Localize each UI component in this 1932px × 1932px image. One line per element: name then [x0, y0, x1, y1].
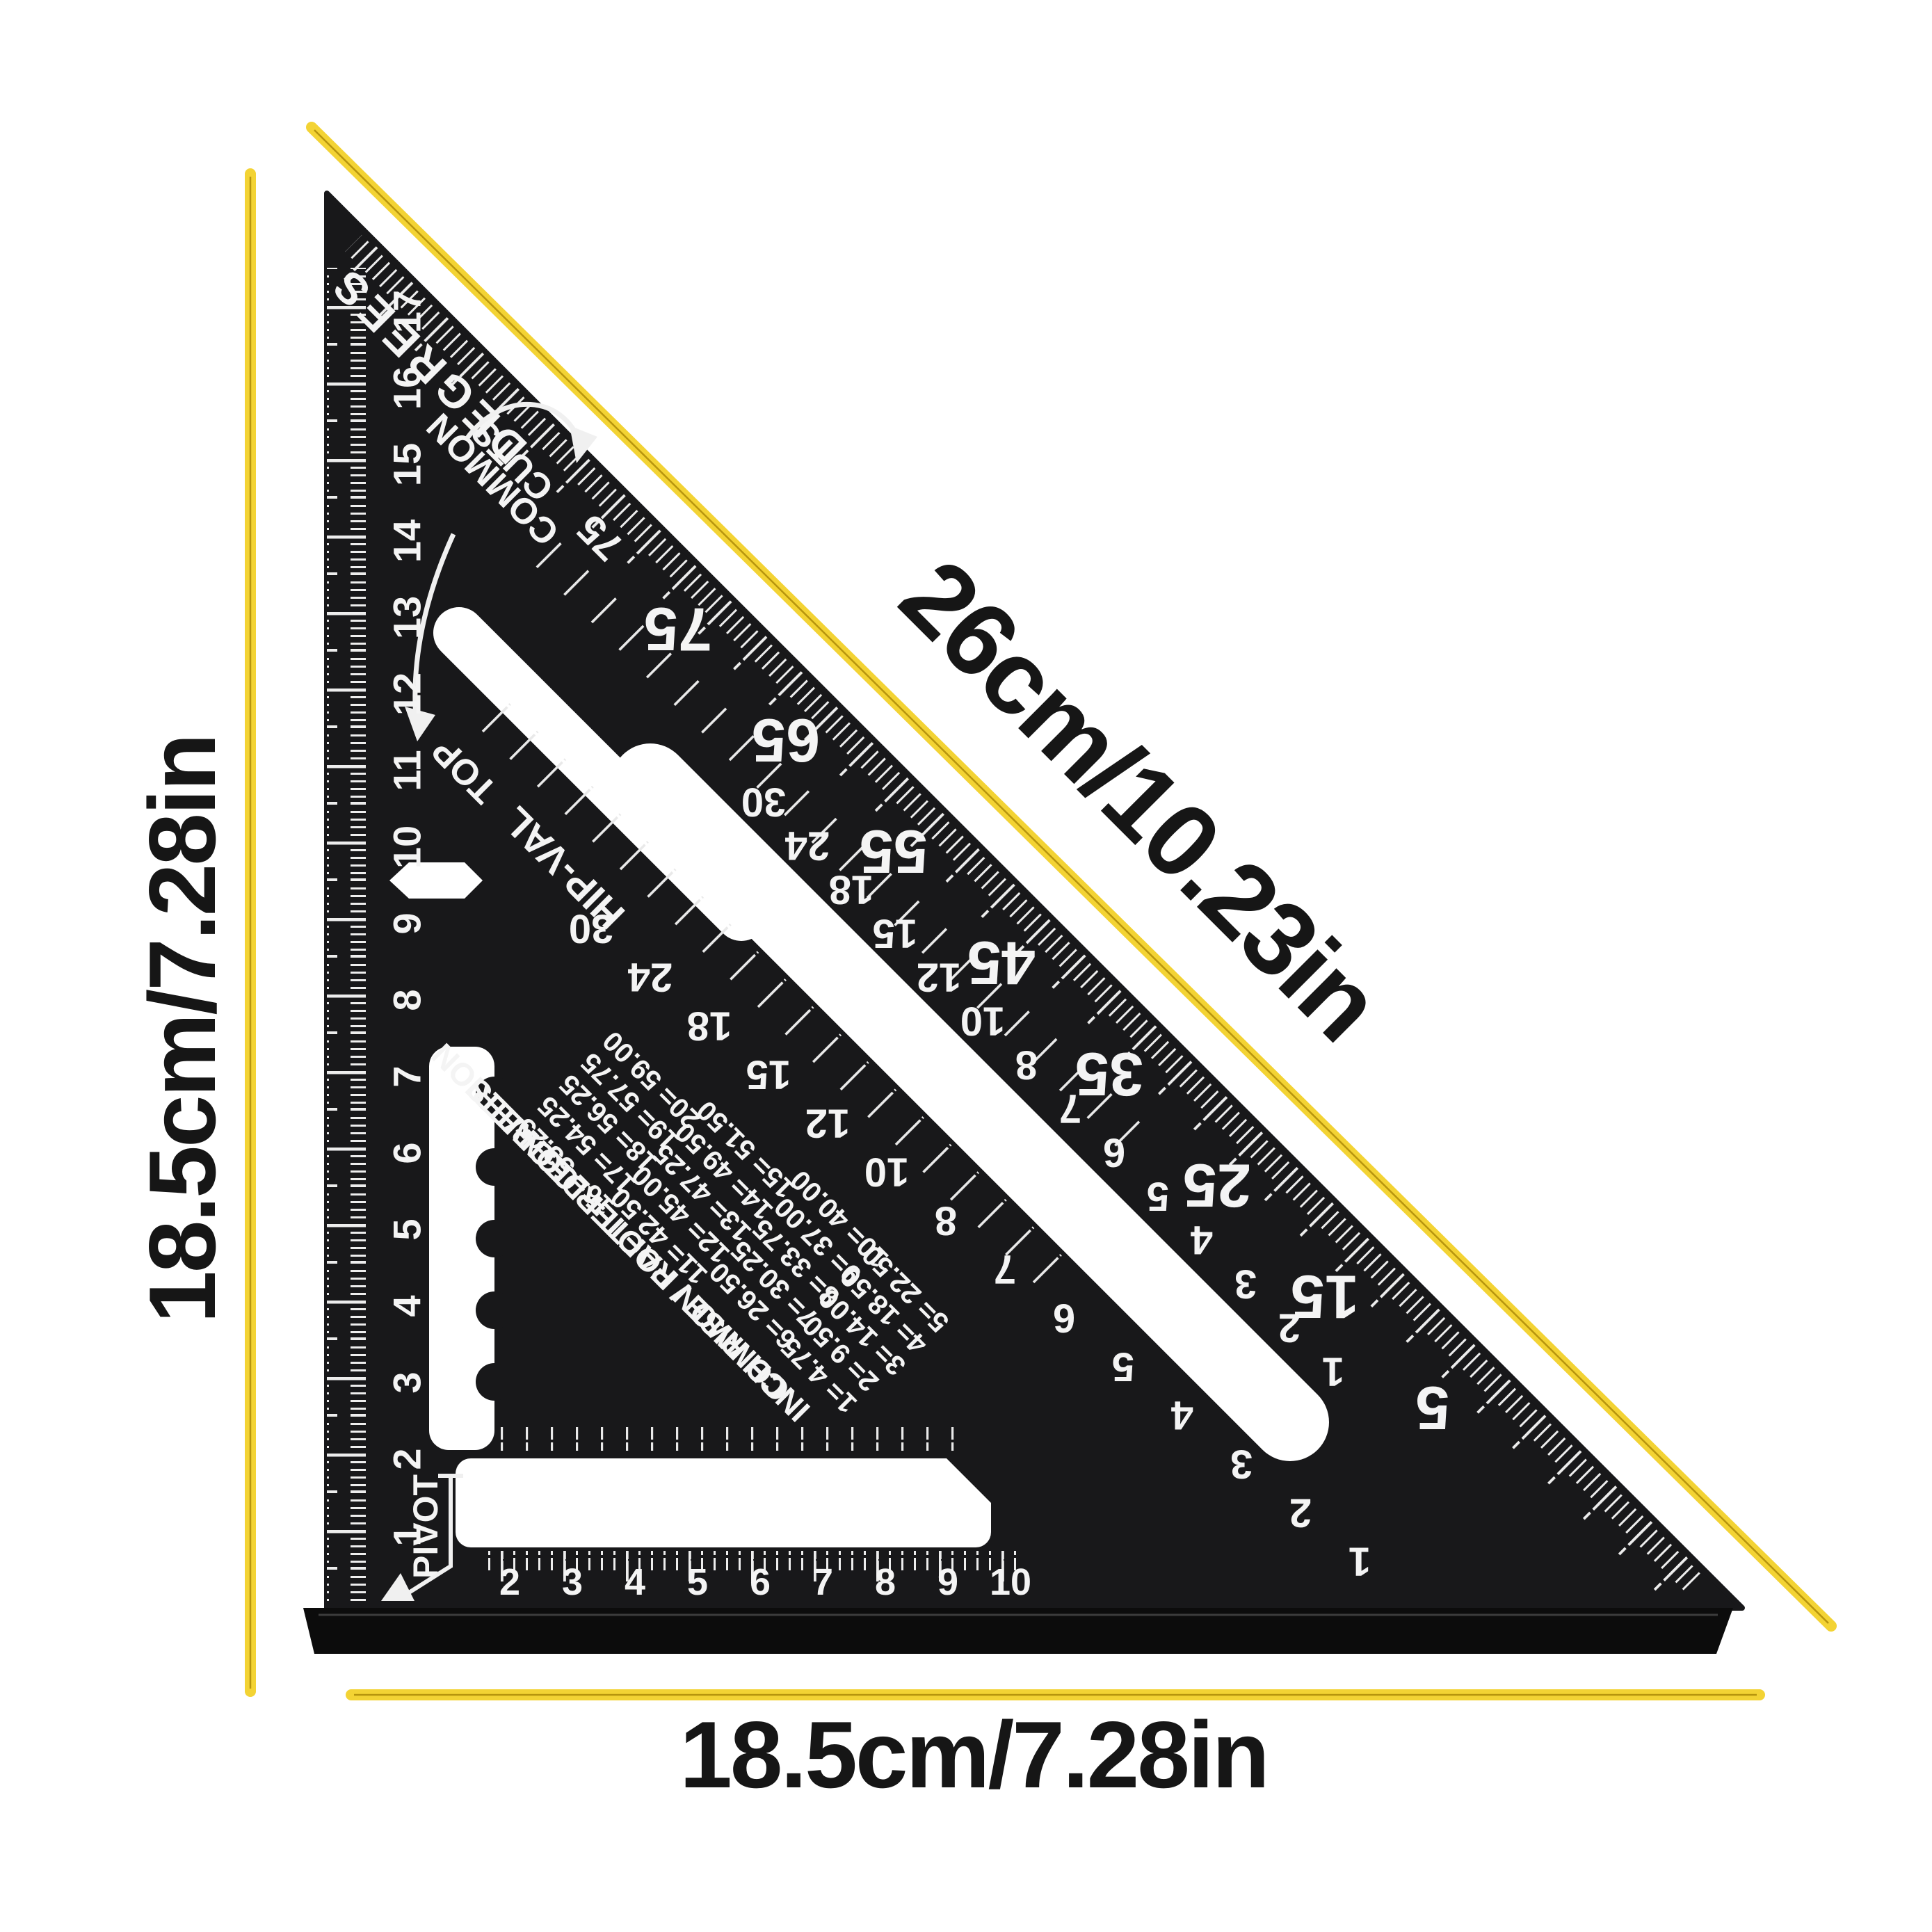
svg-text:10: 10 — [385, 826, 429, 869]
svg-text:6: 6 — [1053, 1296, 1075, 1341]
svg-text:10: 10 — [864, 1150, 910, 1195]
svg-text:4: 4 — [1171, 1393, 1193, 1438]
bottom-ruler-numbers: 2 3 4 5 6 7 8 9 10 — [499, 1561, 1031, 1603]
svg-text:5: 5 — [1147, 1174, 1169, 1219]
svg-text:18: 18 — [829, 867, 874, 912]
speed-square-illustration: DEGREES CUTS COMMON 75 TOP HIP-VAL PIVOT… — [0, 0, 1932, 1932]
svg-text:8: 8 — [875, 1561, 896, 1603]
svg-text:5: 5 — [1112, 1344, 1134, 1390]
svg-text:2: 2 — [499, 1561, 520, 1603]
svg-text:4: 4 — [1191, 1218, 1213, 1263]
svg-text:12: 12 — [917, 955, 962, 1000]
svg-text:16: 16 — [385, 367, 429, 410]
svg-text:1: 1 — [1349, 1539, 1371, 1584]
svg-text:6: 6 — [1103, 1130, 1125, 1175]
bottom-dimension-label: 18.5cm/7.28in — [679, 1700, 1268, 1809]
svg-text:6: 6 — [385, 1142, 429, 1164]
svg-text:15: 15 — [385, 443, 429, 486]
svg-text:7: 7 — [994, 1247, 1016, 1292]
svg-text:1: 1 — [385, 1524, 429, 1546]
svg-text:65: 65 — [752, 707, 820, 775]
left-dimension-label: 18.5cm/7.28in — [128, 735, 236, 1323]
svg-text:3: 3 — [1234, 1262, 1257, 1307]
svg-text:15: 15 — [873, 911, 918, 956]
svg-text:25: 25 — [1183, 1152, 1251, 1221]
svg-text:75: 75 — [644, 595, 712, 664]
svg-text:5: 5 — [385, 1218, 429, 1240]
svg-text:5: 5 — [687, 1561, 708, 1603]
svg-text:7: 7 — [812, 1561, 833, 1603]
cm-ruler-ticks — [327, 268, 366, 1607]
svg-text:14: 14 — [385, 520, 429, 563]
svg-text:9: 9 — [937, 1561, 958, 1603]
svg-text:7: 7 — [385, 1065, 429, 1087]
svg-text:2: 2 — [1278, 1305, 1301, 1351]
svg-text:3: 3 — [385, 1371, 429, 1393]
svg-text:45: 45 — [967, 929, 1036, 998]
svg-text:8: 8 — [935, 1198, 957, 1243]
svg-text:12: 12 — [805, 1101, 851, 1146]
svg-text:24: 24 — [628, 955, 673, 1000]
product-photo-stage: DEGREES CUTS COMMON 75 TOP HIP-VAL PIVOT… — [0, 0, 1932, 1932]
svg-text:5: 5 — [1416, 1374, 1450, 1443]
svg-text:2: 2 — [1289, 1490, 1312, 1536]
svg-text:18: 18 — [687, 1004, 732, 1049]
svg-text:12: 12 — [385, 673, 429, 716]
svg-text:35: 35 — [1075, 1040, 1143, 1109]
svg-text:30: 30 — [569, 906, 614, 951]
svg-text:1: 1 — [1322, 1349, 1344, 1394]
svg-text:3: 3 — [562, 1561, 583, 1603]
svg-text:3: 3 — [1230, 1442, 1253, 1487]
svg-text:30: 30 — [741, 780, 787, 825]
svg-text:4: 4 — [385, 1295, 429, 1317]
svg-text:13: 13 — [385, 596, 429, 639]
bottom-slot-upper-ticks — [487, 1427, 967, 1451]
svg-text:4: 4 — [625, 1561, 645, 1603]
slot-bottom-rectangle — [456, 1458, 991, 1547]
svg-text:8: 8 — [385, 989, 429, 1011]
svg-text:17: 17 — [385, 290, 429, 333]
svg-text:7: 7 — [1059, 1086, 1081, 1132]
svg-text:15: 15 — [746, 1052, 791, 1097]
svg-text:2: 2 — [385, 1448, 429, 1470]
svg-text:24: 24 — [785, 823, 830, 869]
svg-text:10: 10 — [960, 999, 1006, 1044]
svg-text:11: 11 — [385, 750, 429, 791]
svg-text:10: 10 — [990, 1561, 1031, 1603]
svg-text:6: 6 — [750, 1561, 771, 1603]
svg-text:9: 9 — [385, 912, 429, 934]
svg-text:8: 8 — [1015, 1043, 1038, 1088]
